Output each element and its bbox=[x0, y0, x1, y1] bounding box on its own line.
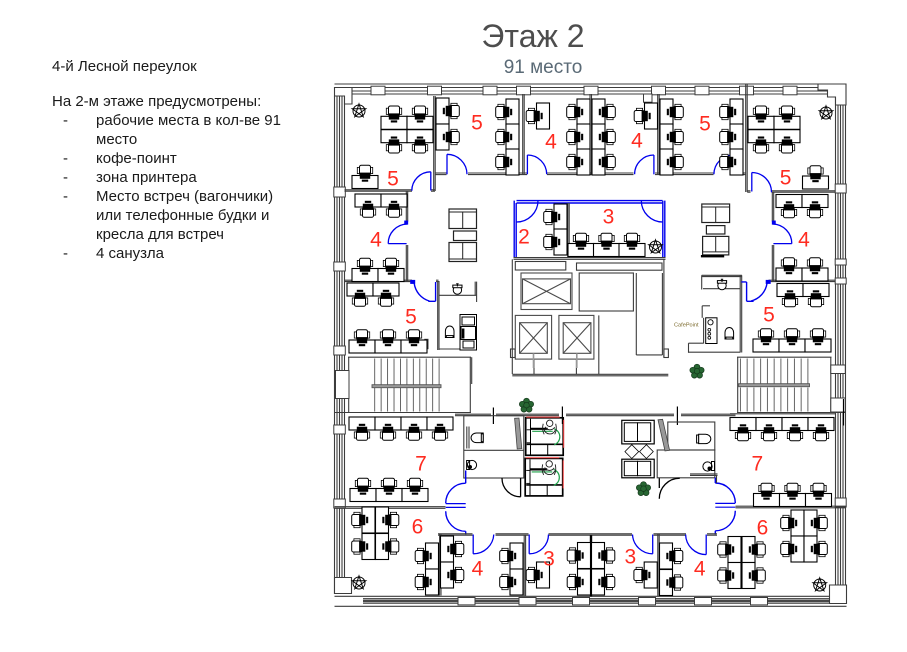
svg-text:6: 6 bbox=[757, 517, 769, 540]
svg-text:3: 3 bbox=[603, 206, 615, 229]
svg-text:4: 4 bbox=[545, 131, 557, 154]
svg-text:5: 5 bbox=[387, 168, 399, 191]
svg-text:3: 3 bbox=[543, 548, 555, 571]
svg-text:7: 7 bbox=[415, 453, 427, 476]
svg-text:5: 5 bbox=[763, 304, 775, 327]
svg-text:CafePoint: CafePoint bbox=[674, 323, 699, 329]
svg-text:5: 5 bbox=[405, 306, 417, 329]
svg-text:7: 7 bbox=[752, 453, 764, 476]
svg-text:6: 6 bbox=[412, 516, 424, 539]
svg-text:5: 5 bbox=[471, 112, 483, 135]
svg-text:4: 4 bbox=[694, 558, 706, 581]
svg-text:2: 2 bbox=[518, 226, 530, 249]
svg-text:4: 4 bbox=[631, 130, 643, 153]
svg-text:5: 5 bbox=[699, 113, 711, 136]
svg-text:4: 4 bbox=[798, 229, 810, 252]
svg-text:4: 4 bbox=[472, 558, 484, 581]
svg-text:3: 3 bbox=[624, 546, 636, 569]
svg-text:4: 4 bbox=[370, 229, 382, 252]
svg-text:5: 5 bbox=[780, 167, 792, 190]
